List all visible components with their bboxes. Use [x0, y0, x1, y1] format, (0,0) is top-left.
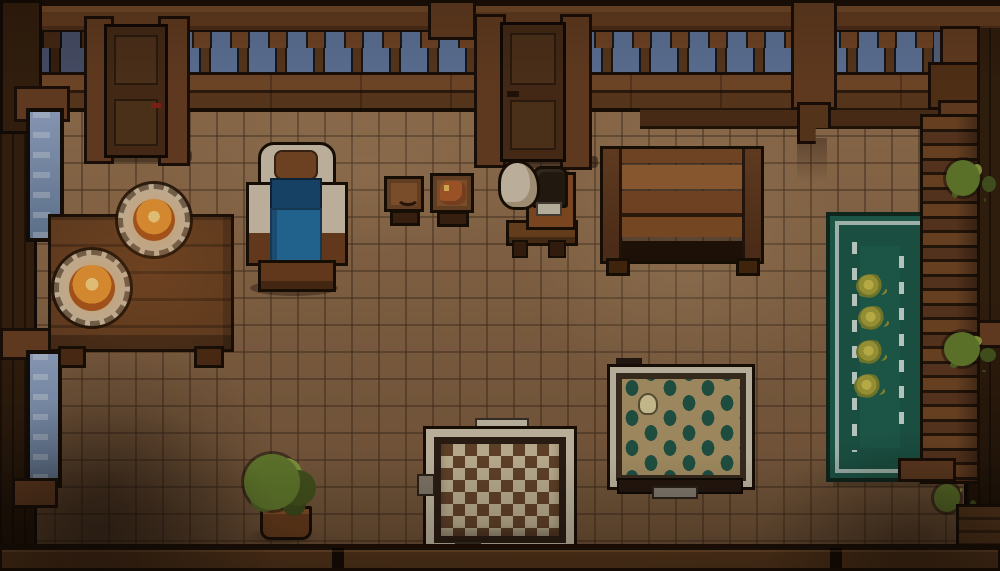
- bowl-icon: [396, 188, 420, 206]
- balustrade-sky: [831, 32, 934, 74]
- bush-icon: [244, 454, 300, 510]
- candle-dish[interactable]: [118, 184, 190, 256]
- flower-motif-icon: [854, 374, 884, 398]
- diamond-rug[interactable]: [607, 364, 755, 490]
- table-foot: [736, 258, 760, 276]
- rug-diamond-field: [622, 379, 740, 475]
- end-table-food[interactable]: [430, 173, 474, 225]
- door-handle-icon: [151, 103, 161, 108]
- chair-headrest: [274, 150, 318, 180]
- door-panel: [510, 33, 556, 85]
- door-northwest[interactable]: [104, 24, 168, 158]
- armchair[interactable]: [246, 142, 342, 298]
- checkered-rug[interactable]: [423, 426, 577, 554]
- table-foot: [606, 258, 630, 276]
- chair-front: [258, 260, 336, 292]
- rug-tab: [652, 486, 698, 499]
- support-post: [791, 0, 837, 110]
- post-floor-shadow: [797, 138, 827, 182]
- rug-notch: [417, 474, 435, 496]
- potted-plant[interactable]: [238, 450, 326, 550]
- stool-top: [430, 173, 474, 213]
- bottom-wall-beam: [2, 548, 998, 568]
- service-desk[interactable]: [496, 156, 578, 254]
- food-garnish-icon: [444, 185, 449, 191]
- flower-motif-icon: [856, 340, 886, 364]
- game-piece-icon: [638, 393, 658, 415]
- stool-top: [384, 176, 424, 212]
- machine-label: [536, 202, 562, 216]
- game-scene: [0, 0, 1000, 571]
- table-leg: [58, 346, 86, 368]
- window-lower-left[interactable]: [26, 350, 62, 488]
- bush-icon: [944, 332, 980, 366]
- plant-pot-icon: [260, 506, 312, 540]
- balustrade-sky: [586, 32, 793, 74]
- wall-rail-lower: [640, 108, 940, 129]
- rug-checker-field: [441, 444, 559, 536]
- desk-leg: [512, 240, 528, 258]
- bush-icon: [946, 160, 980, 196]
- stool-base: [390, 210, 420, 226]
- balustrade-sky-dark: [34, 32, 88, 74]
- flower-motif-icon: [858, 306, 888, 330]
- end-table-bowl[interactable]: [384, 176, 424, 224]
- shelf-plant[interactable]: [946, 160, 980, 196]
- door-panel: [510, 100, 556, 150]
- door-north[interactable]: [500, 22, 566, 162]
- shelf-board: [898, 458, 956, 482]
- rug-pattern: [899, 256, 904, 438]
- door-panel: [114, 35, 158, 85]
- shelf-plant[interactable]: [944, 332, 980, 366]
- candle-flame-icon: [69, 265, 115, 311]
- candle-dish[interactable]: [54, 250, 130, 326]
- stool-base: [437, 211, 469, 227]
- candle-flame-icon: [133, 199, 175, 241]
- door-handle-icon: [507, 91, 519, 97]
- table-leg: [194, 346, 224, 368]
- window-sill: [12, 478, 58, 508]
- green-runner-rug[interactable]: [826, 212, 934, 482]
- desk-leg: [548, 240, 566, 258]
- cloth-sack[interactable]: [498, 160, 540, 210]
- long-table[interactable]: [600, 146, 764, 264]
- post-connector: [428, 0, 476, 40]
- flower-motif-icon: [856, 274, 886, 298]
